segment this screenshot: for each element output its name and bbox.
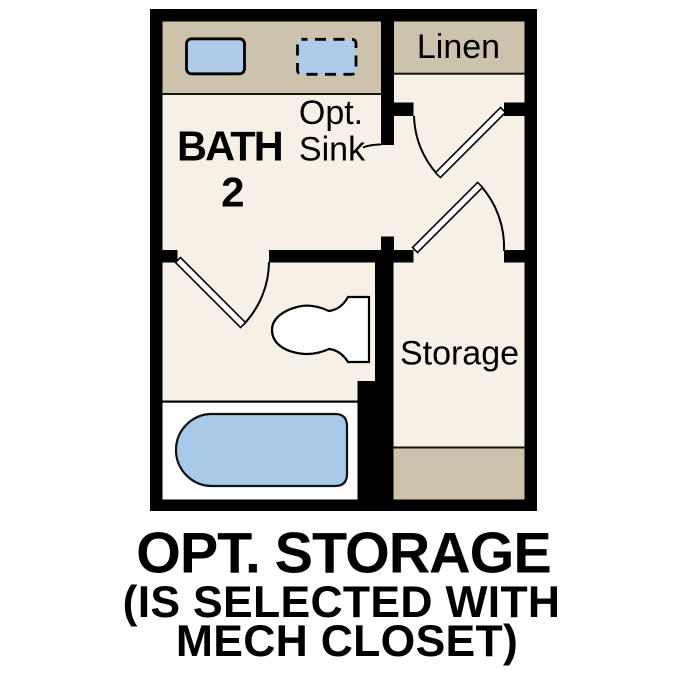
svg-text:BATH: BATH [177,123,282,170]
svg-text:2: 2 [221,169,244,216]
svg-text:OPT. STORAGE: OPT. STORAGE [136,522,550,586]
svg-text:Opt.: Opt. [299,94,363,132]
svg-text:Sink: Sink [299,131,366,169]
svg-text:MECH CLOSET): MECH CLOSET) [176,617,518,666]
svg-text:Storage: Storage [400,334,519,372]
svg-text:Linen: Linen [417,28,500,66]
